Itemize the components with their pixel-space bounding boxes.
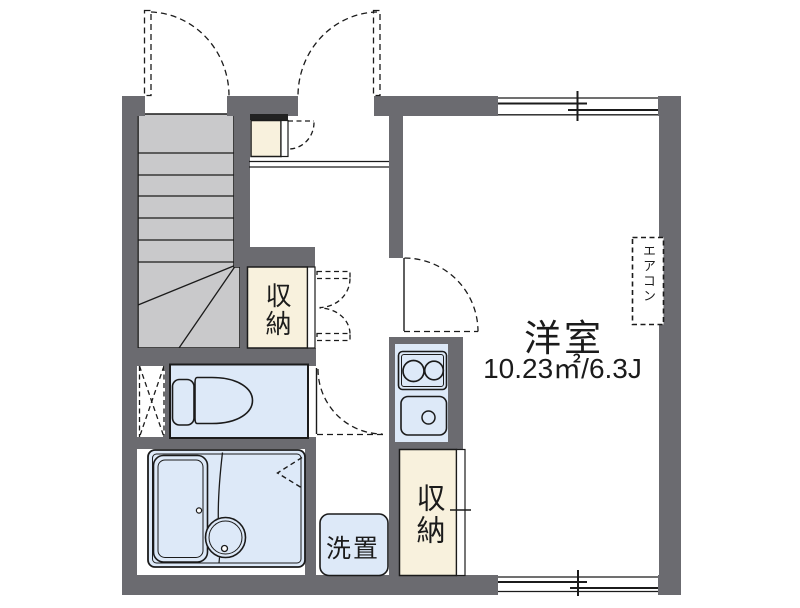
storage-hall-label: 収納 [263, 282, 289, 338]
shoe-cabinet [251, 121, 314, 157]
shoe-cabinet-top-edge [250, 114, 288, 120]
entry-doors [145, 11, 381, 97]
floorplan-graphic [0, 0, 800, 608]
storage-main-label: 収納 [414, 483, 443, 547]
toilet-room [170, 365, 308, 439]
window-bottom [498, 570, 658, 596]
washer-space-label: 洗置 [326, 529, 380, 565]
staircase [138, 114, 240, 348]
bathroom [148, 450, 305, 567]
toilet-door [317, 368, 384, 435]
main-room-area-label: 10.23㎡/6.3J [465, 347, 660, 387]
window-top [498, 91, 658, 121]
floorplan: 収納 収納 洗置 洋室 10.23㎡/6.3J エアコン [0, 0, 800, 608]
bifold-door [317, 272, 350, 341]
entry-step [249, 162, 389, 168]
aircon-label: エアコン [641, 244, 654, 304]
main-room-door [404, 258, 478, 332]
kitchen-unit [389, 337, 463, 450]
pipe-space [140, 366, 165, 437]
